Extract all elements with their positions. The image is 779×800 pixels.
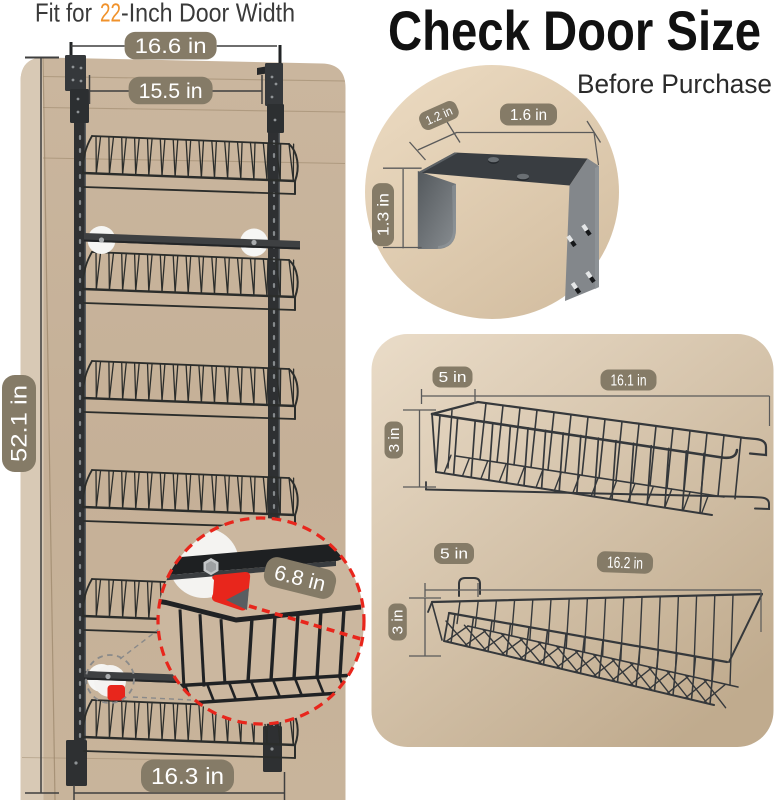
svg-text:5 in: 5 in — [439, 369, 467, 386]
svg-text:3 in: 3 in — [387, 428, 403, 453]
svg-text:16.2 in: 16.2 in — [607, 554, 644, 572]
svg-text:1.3 in: 1.3 in — [376, 193, 393, 236]
svg-text:16.3 in: 16.3 in — [151, 763, 224, 789]
svg-text:15.5 in: 15.5 in — [139, 80, 203, 103]
svg-text:-Inch Door Width: -Inch Door Width — [121, 0, 295, 28]
svg-text:Check Door Size: Check Door Size — [388, 0, 761, 62]
svg-text:Before Purchase: Before Purchase — [577, 69, 772, 99]
svg-text:5 in: 5 in — [440, 546, 468, 563]
svg-text:Fit for: Fit for — [35, 0, 92, 28]
svg-text:1.6 in: 1.6 in — [510, 107, 547, 124]
svg-text:16.6 in: 16.6 in — [135, 35, 207, 58]
svg-text:52.1 in: 52.1 in — [7, 385, 32, 462]
svg-text:22: 22 — [100, 0, 121, 28]
svg-text:3 in: 3 in — [391, 610, 407, 635]
svg-text:16.1 in: 16.1 in — [611, 373, 647, 390]
